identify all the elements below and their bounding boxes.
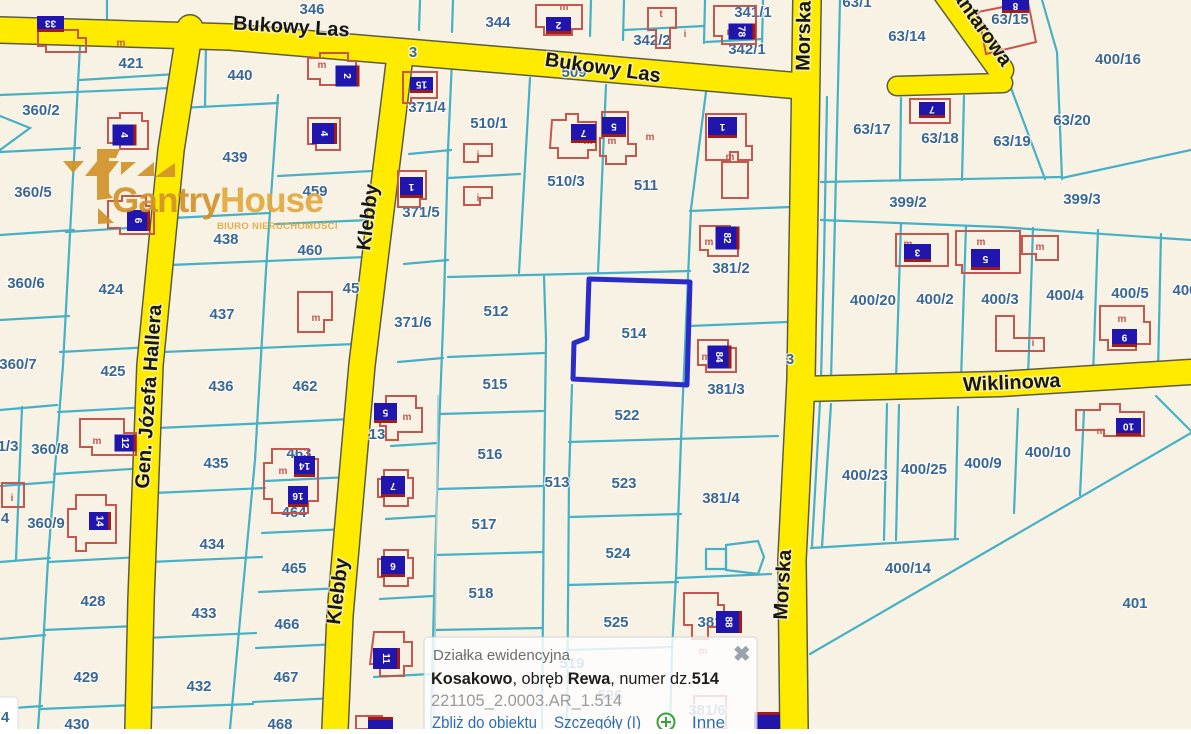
svg-text:63/20: 63/20 xyxy=(1053,112,1091,129)
svg-text:1: 1 xyxy=(408,181,414,192)
svg-text:399/2: 399/2 xyxy=(889,194,927,211)
svg-text:400/16: 400/16 xyxy=(1095,51,1141,68)
svg-text:GantryHouse: GantryHouse xyxy=(112,181,323,220)
svg-text:m: m xyxy=(1036,242,1045,253)
svg-text:7: 7 xyxy=(390,480,396,491)
svg-text:466: 466 xyxy=(274,616,299,633)
svg-text:435: 435 xyxy=(203,455,228,472)
svg-text:m: m xyxy=(318,60,327,71)
svg-text:82: 82 xyxy=(721,232,732,244)
svg-text:360/8: 360/8 xyxy=(31,441,69,458)
svg-text:401: 401 xyxy=(1122,595,1147,612)
svg-text:400/14: 400/14 xyxy=(885,560,932,577)
svg-text:m: m xyxy=(117,38,126,49)
svg-text:465: 465 xyxy=(281,560,306,577)
svg-text:400/23: 400/23 xyxy=(842,467,888,484)
svg-text:522: 522 xyxy=(614,407,639,424)
svg-text:5: 5 xyxy=(982,253,988,264)
svg-text:Działka ewidencyjna: Działka ewidencyjna xyxy=(433,647,571,664)
svg-text:Wiklinowa: Wiklinowa xyxy=(963,370,1062,396)
svg-text:8: 8 xyxy=(1012,0,1018,11)
svg-text:4: 4 xyxy=(1,709,10,726)
svg-text:439: 439 xyxy=(222,149,247,166)
svg-text:13: 13 xyxy=(369,426,386,443)
svg-text:5: 5 xyxy=(382,407,388,418)
svg-text:371/6: 371/6 xyxy=(394,314,432,331)
svg-text:510/3: 510/3 xyxy=(547,173,585,190)
svg-text:360/5: 360/5 xyxy=(14,184,52,201)
svg-text:424: 424 xyxy=(98,281,124,298)
svg-text:Kosakowo, obręb Rewa, numer dz: Kosakowo, obręb Rewa, numer dz.514 xyxy=(431,669,720,688)
svg-text:400/3: 400/3 xyxy=(981,291,1019,308)
svg-text:467: 467 xyxy=(273,669,298,686)
svg-text:430: 430 xyxy=(64,716,89,729)
svg-text:14: 14 xyxy=(299,460,311,471)
svg-text:63/1: 63/1 xyxy=(842,0,871,11)
svg-text:400/20: 400/20 xyxy=(850,292,896,309)
svg-text:9: 9 xyxy=(1121,332,1127,343)
svg-text:88: 88 xyxy=(723,616,734,628)
svg-text:381/3: 381/3 xyxy=(707,381,745,398)
svg-text:515: 515 xyxy=(482,376,507,393)
svg-text:✖: ✖ xyxy=(733,643,751,666)
svg-text:m: m xyxy=(93,436,102,447)
svg-text:460: 460 xyxy=(297,242,322,259)
svg-text:3: 3 xyxy=(786,351,794,368)
svg-text:344: 344 xyxy=(485,14,511,31)
svg-text:4: 4 xyxy=(318,131,329,137)
svg-text:63/15: 63/15 xyxy=(991,11,1029,28)
svg-text:7: 7 xyxy=(929,104,935,115)
svg-text:512: 512 xyxy=(483,303,508,320)
svg-text:12: 12 xyxy=(119,437,130,449)
svg-text:360/6: 360/6 xyxy=(7,275,45,292)
svg-text:400/9: 400/9 xyxy=(964,455,1002,472)
svg-text:14: 14 xyxy=(94,515,105,527)
svg-text:3: 3 xyxy=(409,44,417,61)
svg-text:360/9: 360/9 xyxy=(27,515,65,532)
svg-text:BIURO NIERUCHOMOŚCI: BIURO NIERUCHOMOŚCI xyxy=(217,220,338,232)
svg-text:221105_2.0003.AR_1.514: 221105_2.0003.AR_1.514 xyxy=(431,691,622,710)
svg-text:4: 4 xyxy=(118,132,129,138)
svg-text:Zbliż do obiektu: Zbliż do obiektu xyxy=(432,713,537,729)
svg-text:15: 15 xyxy=(416,79,428,90)
svg-text:399/3: 399/3 xyxy=(1063,191,1101,208)
svg-text:10: 10 xyxy=(1123,421,1135,432)
svg-text:i: i xyxy=(11,493,14,504)
svg-text:437: 437 xyxy=(209,306,234,323)
svg-text:468: 468 xyxy=(267,716,292,729)
svg-text:513: 513 xyxy=(544,474,569,491)
svg-text:4: 4 xyxy=(1,510,10,527)
svg-text:78: 78 xyxy=(736,26,747,38)
svg-text:m: m xyxy=(977,237,986,248)
svg-text:7: 7 xyxy=(580,127,586,138)
svg-text:6: 6 xyxy=(390,560,396,571)
svg-text:514: 514 xyxy=(621,325,647,342)
svg-text:381/4: 381/4 xyxy=(702,490,740,507)
svg-text:516: 516 xyxy=(477,446,502,463)
svg-text:3: 3 xyxy=(914,247,920,258)
svg-text:Morska: Morska xyxy=(770,548,796,620)
svg-text:Morska: Morska xyxy=(792,0,815,71)
svg-text:436: 436 xyxy=(208,378,233,395)
svg-text:434: 434 xyxy=(199,536,225,553)
svg-text:11: 11 xyxy=(380,653,391,664)
svg-text:84: 84 xyxy=(713,351,724,363)
svg-text:400/10: 400/10 xyxy=(1025,444,1071,461)
svg-text:346: 346 xyxy=(299,1,324,18)
svg-text:16: 16 xyxy=(292,490,304,501)
svg-text:400/2: 400/2 xyxy=(916,291,954,308)
svg-text:63/17: 63/17 xyxy=(853,121,891,138)
svg-text:400/4: 400/4 xyxy=(1046,287,1084,304)
svg-text:m: m xyxy=(608,136,617,147)
svg-text:425: 425 xyxy=(100,363,125,380)
svg-text:438: 438 xyxy=(213,231,238,248)
svg-text:m: m xyxy=(646,132,655,143)
svg-text:400: 400 xyxy=(1172,282,1191,299)
svg-text:5: 5 xyxy=(611,121,617,132)
svg-text:1/3: 1/3 xyxy=(0,438,18,455)
svg-text:518: 518 xyxy=(468,585,493,602)
svg-text:400/25: 400/25 xyxy=(901,461,947,478)
svg-text:m: m xyxy=(726,152,735,163)
svg-text:m: m xyxy=(560,2,569,13)
svg-text:360/2: 360/2 xyxy=(22,102,60,119)
svg-text:45: 45 xyxy=(343,280,360,297)
svg-text:m: m xyxy=(403,412,412,423)
svg-text:i: i xyxy=(477,193,480,204)
svg-text:360/7: 360/7 xyxy=(0,356,37,373)
svg-text:524: 524 xyxy=(605,545,631,562)
svg-text:m: m xyxy=(279,466,288,477)
svg-text:432: 432 xyxy=(186,678,211,695)
svg-text:33: 33 xyxy=(45,18,57,29)
svg-text:510/1: 510/1 xyxy=(470,115,508,132)
svg-text:i: i xyxy=(1032,338,1035,349)
svg-text:i: i xyxy=(684,29,687,40)
svg-text:Szczegóły (I): Szczegóły (I) xyxy=(554,713,641,729)
svg-text:m: m xyxy=(705,237,714,248)
svg-text:2: 2 xyxy=(555,19,561,30)
svg-text:63/19: 63/19 xyxy=(993,133,1031,150)
svg-text:381/2: 381/2 xyxy=(712,260,750,277)
svg-text:517: 517 xyxy=(471,516,496,533)
svg-text:2: 2 xyxy=(341,73,352,79)
svg-text:400/5: 400/5 xyxy=(1111,285,1149,302)
svg-text:523: 523 xyxy=(611,475,636,492)
svg-text:63/18: 63/18 xyxy=(921,130,959,147)
svg-text:m: m xyxy=(312,313,321,324)
svg-text:m: m xyxy=(1097,426,1106,437)
svg-text:421: 421 xyxy=(118,55,143,72)
svg-text:1: 1 xyxy=(719,121,725,132)
svg-text:m: m xyxy=(1118,314,1127,325)
svg-text:i: i xyxy=(477,150,480,161)
svg-text:428: 428 xyxy=(80,593,105,610)
svg-text:440: 440 xyxy=(227,67,252,84)
svg-text:371/4: 371/4 xyxy=(408,99,446,116)
svg-text:462: 462 xyxy=(292,378,317,395)
svg-text:511: 511 xyxy=(634,177,658,194)
svg-text:429: 429 xyxy=(73,669,98,686)
svg-text:Inne: Inne xyxy=(692,713,725,729)
svg-text:433: 433 xyxy=(191,605,216,622)
svg-text:525: 525 xyxy=(603,614,628,631)
svg-text:63/14: 63/14 xyxy=(888,28,926,45)
svg-text:342/2: 342/2 xyxy=(633,32,671,49)
